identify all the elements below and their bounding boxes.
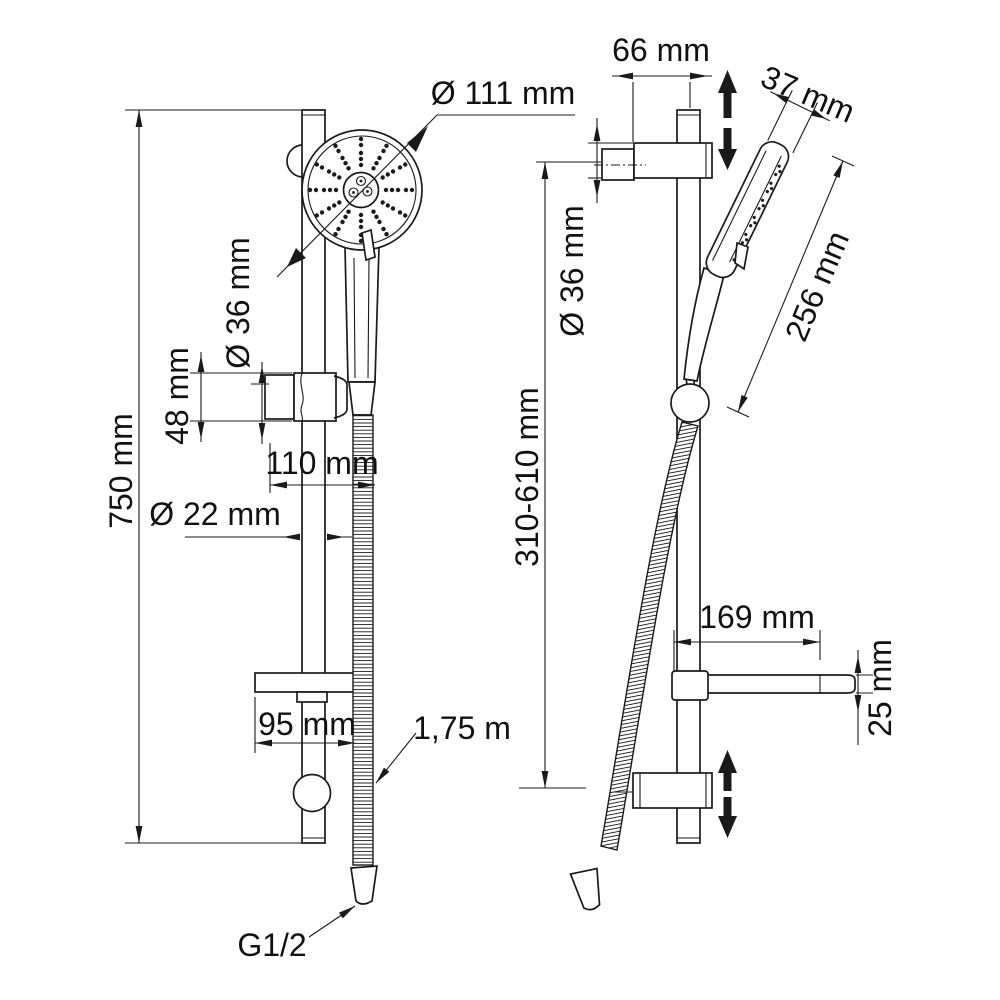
label-holder-height: 48 mm — [159, 347, 195, 445]
label-height-adjust-range: 310-610 mm — [509, 387, 545, 567]
slider-holder-front — [265, 373, 347, 421]
label-thread-size: G1/2 — [237, 927, 306, 963]
label-head-diameter: Ø 111 mm — [431, 75, 576, 111]
hose-connector-front — [349, 382, 375, 415]
label-holder-clamp-diameter: Ø 36 mm — [220, 237, 256, 369]
label-rail-diameter: Ø 22 mm — [149, 496, 281, 532]
label-shelf-width: 95 mm — [258, 706, 356, 742]
label-bracket-height-diameter: Ø 36 mm — [554, 205, 590, 337]
technical-drawing-page: 750 mm Ø 111 mm 48 mm Ø 36 mm — [0, 0, 1000, 1000]
hand-shower-handle-front — [345, 247, 379, 382]
label-hose-length: 1,75 m — [413, 710, 511, 746]
shower-set-dimension-drawing: 750 mm Ø 111 mm 48 mm Ø 36 mm — [0, 0, 1000, 1000]
wall-bracket-bottom-side — [633, 773, 712, 808]
label-wall-offset: 66 mm — [612, 32, 710, 68]
wall-bracket-bottom-front — [294, 775, 331, 812]
shower-head-hub — [344, 173, 379, 208]
hose-nut-front — [351, 866, 377, 904]
label-shelf-thickness: 25 mm — [862, 639, 898, 737]
label-holder-offset: 110 mm — [265, 445, 378, 481]
label-rail-length: 750 mm — [103, 413, 139, 529]
dim-shelf-thickness: 25 mm — [855, 639, 898, 745]
label-shelf-depth: 169 mm — [699, 599, 815, 635]
hose-ribbed-front — [353, 415, 373, 865]
wall-bracket-top-side — [594, 143, 712, 180]
dim-holder-offset: 110 mm — [265, 443, 378, 493]
